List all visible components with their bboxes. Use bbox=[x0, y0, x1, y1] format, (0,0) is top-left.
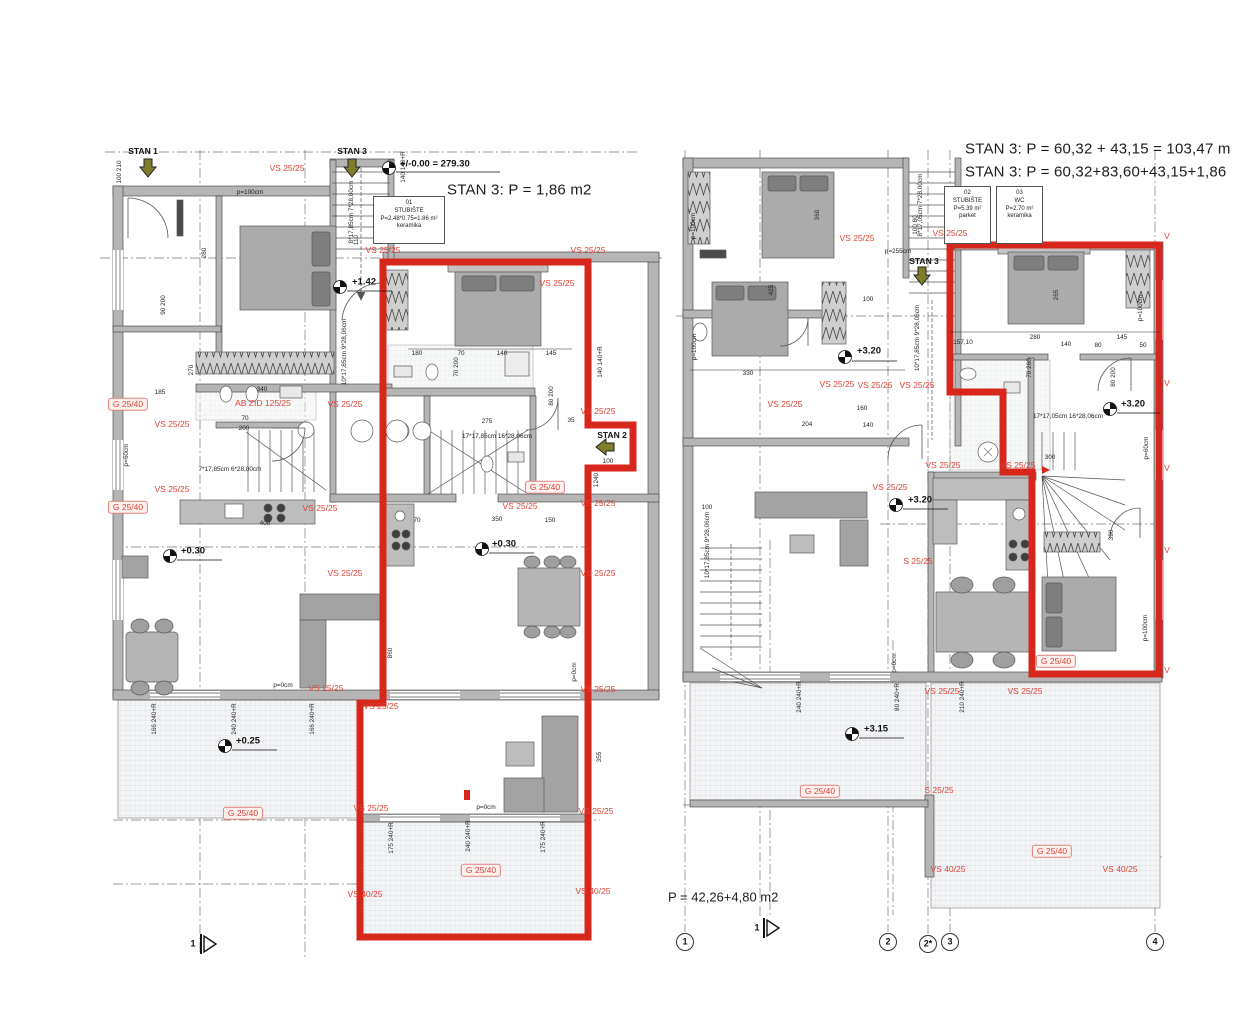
room-name: WC bbox=[998, 198, 1041, 206]
axis-bubbles bbox=[677, 934, 1164, 953]
label-g-25-40: G 25/40 bbox=[1032, 845, 1072, 858]
label-vs-25-25: VS 25/25 bbox=[581, 407, 616, 416]
label-860: 860 bbox=[388, 648, 394, 659]
label-17-17-85cm-16-28-06cm: 17*17,85cm 16*28,06cm bbox=[462, 434, 532, 440]
label-vs-25-25: VS 25/25 bbox=[364, 702, 399, 711]
axis-bubble-2s: 2* bbox=[924, 940, 933, 949]
label-ab-zid-125-25: AB ZID 125/25 bbox=[235, 399, 291, 408]
label-204: 204 bbox=[802, 422, 813, 428]
label-vs-25-25: VS 25/25 bbox=[303, 504, 338, 513]
label-p-0cm: p=0cm bbox=[572, 662, 578, 681]
label-g-25-40: G 25/40 bbox=[108, 501, 148, 514]
label-3-20: +3.20 bbox=[908, 495, 932, 505]
label-p-60cm: p=60cm bbox=[1144, 437, 1150, 460]
label-10-17-85cm-9-28-06cm: 10*17,85cm 9*28,06cm bbox=[915, 305, 921, 371]
label-70: 70 bbox=[241, 416, 248, 422]
room-box-wc-03: 03 WC P=2.70 m² keramika bbox=[996, 186, 1043, 244]
label-p-255cm: p=255cm bbox=[885, 249, 911, 255]
label-g-25-40: G 25/40 bbox=[108, 398, 148, 411]
label-v: V bbox=[1164, 666, 1170, 675]
label-80: 80 bbox=[1094, 343, 1101, 349]
label-340: 340 bbox=[257, 387, 268, 393]
label-vs-25-25: VS 25/25 bbox=[1008, 687, 1043, 696]
label-v: V bbox=[1164, 232, 1170, 241]
label-vs-25-25: VS 25/25 bbox=[309, 684, 344, 693]
room-number: 02 bbox=[946, 190, 989, 198]
entrance-stan1: STAN 1 bbox=[128, 147, 158, 156]
label-3-15: +3.15 bbox=[864, 724, 888, 734]
label-1-42: +1.42 bbox=[352, 277, 376, 287]
axis-bubble-4: 4 bbox=[1152, 938, 1157, 947]
label-p-100cm: p=100cm bbox=[237, 190, 263, 196]
label-vs-25-25: VS 25/25 bbox=[540, 279, 575, 288]
section-marker-1-left: 1 bbox=[190, 940, 195, 949]
axis-bubble-3: 3 bbox=[947, 938, 952, 947]
room-number: 01 bbox=[375, 200, 443, 208]
arrow-stan2-left bbox=[596, 439, 614, 455]
label-280: 280 bbox=[202, 248, 208, 259]
label-vs-25-25: VS 25/25 bbox=[858, 381, 893, 390]
room-floor: keramika bbox=[375, 223, 443, 231]
label-100-210: 100 210 bbox=[117, 160, 123, 183]
label-vs-25-25: VS 25/25 bbox=[768, 400, 803, 409]
label-70-200: 70 200 bbox=[454, 357, 460, 377]
label-0-25: +0.25 bbox=[236, 736, 260, 746]
label-90-200: 90 200 bbox=[161, 295, 167, 315]
label-vs-25-25: VS 25/25 bbox=[820, 380, 855, 389]
label-80-200: 80 200 bbox=[549, 386, 555, 406]
axis-bubble-2: 2 bbox=[885, 938, 890, 947]
label-175-240-r: 175 240+R bbox=[541, 821, 547, 852]
label-240-240-r: 240 240+R bbox=[232, 703, 238, 734]
label-300: 300 bbox=[1045, 455, 1056, 461]
label-10-17-85cm-9-28-06cm: 10*17,85cm 9*28,06cm bbox=[705, 512, 711, 578]
room-area: P=2.48*0.75=1.86 m² bbox=[375, 216, 443, 224]
label-v: V bbox=[1164, 379, 1170, 388]
label-100: 100 bbox=[863, 297, 874, 303]
label-240-240-r: 240 240+R bbox=[797, 681, 803, 712]
label-vs-40-25: VS 40/25 bbox=[576, 887, 611, 896]
label-p-0cm: p=0cm bbox=[273, 683, 292, 689]
label-10-17-85cm-9-28-06cm: 10*17,85cm 9*28,06cm bbox=[342, 319, 348, 385]
label-210-240-r: 210 240+R bbox=[960, 681, 966, 712]
axis-bubble-1: 1 bbox=[682, 938, 687, 947]
label-v: V bbox=[1164, 546, 1170, 555]
room-floor: keramika bbox=[998, 213, 1041, 221]
room-box-stubiste-01: 01 STUBIŠTE P=2.48*0.75=1.86 m² keramika bbox=[373, 196, 445, 244]
label-vs-25-25: VS 25/25 bbox=[840, 234, 875, 243]
label-140-140-r: 140 140+R bbox=[598, 346, 604, 377]
label-vs-25-25: VS 25/25 bbox=[581, 685, 616, 694]
terrace-area-text: P = 42,26+4,80 m2 bbox=[668, 891, 778, 904]
red-mark bbox=[464, 790, 470, 800]
label-150: 150 bbox=[545, 518, 556, 524]
label-vs-25-25: VS 25/25 bbox=[926, 461, 961, 470]
label-vs-25-25: VS 25/25 bbox=[270, 164, 305, 173]
label-vs-25-25: VS 25/25 bbox=[366, 246, 401, 255]
label-s-25-25: S 25/25 bbox=[924, 786, 953, 795]
label-vs-25-25: VS 25/25 bbox=[1001, 461, 1036, 470]
label-17-17-05cm-16-28-06cm: 17*17,05cm 16*28,06cm bbox=[1033, 414, 1103, 420]
label-vs-25-25: VS 25/25 bbox=[503, 502, 538, 511]
label-330: 330 bbox=[743, 371, 754, 377]
label-p-100cm: p=100cm bbox=[1138, 295, 1144, 321]
right-plan-title-2: STAN 3: P = 60,32+83,60+43,15+1,86 bbox=[965, 165, 1226, 180]
label-3-20: +3.20 bbox=[857, 346, 881, 356]
label-0-30: +0.30 bbox=[181, 546, 205, 556]
label-360: 360 bbox=[815, 210, 821, 221]
entrance-stan3-left: STAN 3 bbox=[337, 147, 367, 156]
label-vs-40-25: VS 40/25 bbox=[348, 890, 383, 899]
label-350: 350 bbox=[492, 517, 503, 523]
label-p-0cm: p=0cm bbox=[892, 653, 898, 672]
label-g-25-40: G 25/40 bbox=[525, 481, 565, 494]
label-270: 270 bbox=[189, 365, 195, 376]
label-400: 400 bbox=[260, 521, 271, 527]
room-name: STUBIŠTE bbox=[946, 198, 989, 206]
label-280: 280 bbox=[1030, 335, 1041, 341]
label-8-17-05cm-7-28-00cm: 8*17,05cm 7*28,00cm bbox=[918, 174, 924, 237]
label-vs-25-25: VS 25/25 bbox=[925, 687, 960, 696]
label-0-00-279-30: +/-0.00 = 279.30 bbox=[400, 159, 470, 169]
label-7-17-85cm-6-28-00cm: 7*17,85cm 6*28,00cm bbox=[199, 467, 262, 473]
entrance-stan2: STAN 2 bbox=[597, 431, 627, 440]
label-50: 50 bbox=[1139, 343, 1146, 349]
label-80-240-r: 80 240+R bbox=[895, 683, 901, 711]
label-g-25-40: G 25/40 bbox=[800, 785, 840, 798]
label-145: 145 bbox=[546, 351, 557, 357]
label-vs-25-25: VS 25/25 bbox=[155, 485, 190, 494]
label-p-60cm: p=60cm bbox=[124, 444, 130, 467]
room-number: 03 bbox=[998, 190, 1041, 198]
label-140: 140 bbox=[1061, 342, 1072, 348]
label-p-0cm: p=0cm bbox=[476, 805, 495, 811]
label-vs-25-25: VS 25/25 bbox=[571, 246, 606, 255]
label-185: 185 bbox=[155, 390, 166, 396]
label-vs-25-25: VS 25/25 bbox=[328, 400, 363, 409]
room-area: P=5.39 m² bbox=[946, 206, 989, 214]
label-p-100cm: p=100cm bbox=[1143, 615, 1149, 641]
label-70: 70 bbox=[413, 518, 420, 524]
label-240-240-r: 240 240+R bbox=[466, 820, 472, 851]
label-200: 200 bbox=[239, 426, 250, 432]
label-vs-40-25: VS 40/25 bbox=[1103, 865, 1138, 874]
label-8-17-85cm-7-28-00cm: 8*17,85cm 7*28,00cm bbox=[349, 181, 355, 244]
label-vs-25-25: VS 25/25 bbox=[581, 499, 616, 508]
label-v: V bbox=[1164, 464, 1170, 473]
label-157-10: 157,10 bbox=[953, 340, 973, 346]
label-355: 355 bbox=[597, 752, 603, 763]
label-s-25-25: S 25/25 bbox=[903, 557, 932, 566]
label-vs-25-25: VS 25/25 bbox=[354, 804, 389, 813]
label-160: 160 bbox=[857, 406, 868, 412]
label-vs-25-25: VS 25/25 bbox=[873, 483, 908, 492]
label-35: 35 bbox=[567, 418, 574, 424]
room-area: P=2.70 m² bbox=[998, 206, 1041, 214]
label-180: 180 bbox=[412, 351, 423, 357]
label-166-240-r: 166 240+R bbox=[152, 703, 158, 734]
label-vs-25-25: VS 25/25 bbox=[579, 807, 614, 816]
label-265: 265 bbox=[1054, 290, 1060, 301]
label-425: 425 bbox=[769, 285, 775, 296]
label-vs-25-25: VS 25/25 bbox=[581, 569, 616, 578]
label-100: 100 bbox=[702, 505, 713, 511]
label-140-140-r: 140 140+R bbox=[401, 151, 407, 182]
label-vs-25-25: VS 25/25 bbox=[328, 569, 363, 578]
label-g-25-40: G 25/40 bbox=[223, 807, 263, 820]
left-plan-title: STAN 3: P = 1,86 m2 bbox=[447, 183, 592, 198]
entrance-stan3-right: STAN 3 bbox=[909, 257, 939, 266]
label-g-25-40: G 25/40 bbox=[461, 864, 501, 877]
label-100: 100 bbox=[603, 459, 614, 465]
label-70-260: 70 260 bbox=[1027, 358, 1033, 378]
label-3-20: +3.20 bbox=[1121, 399, 1145, 409]
label-1240: 1240 bbox=[594, 473, 600, 487]
label-275: 275 bbox=[482, 419, 493, 425]
label-p-100cm: p=100cm bbox=[691, 213, 697, 239]
right-plan-title-1: STAN 3: P = 60,32 + 43,15 = 103,47 m bbox=[965, 142, 1231, 157]
label-p-100cm: p=100cm bbox=[692, 334, 698, 360]
label-175-240-r: 175 240+R bbox=[389, 822, 395, 853]
arrow-stan1-down bbox=[140, 159, 156, 177]
label-vs-25-25: VS 25/25 bbox=[900, 381, 935, 390]
label-145: 145 bbox=[1117, 335, 1128, 341]
room-floor: parket bbox=[946, 213, 989, 221]
label-80-200: 80 200 bbox=[1111, 367, 1117, 387]
label-0-30: +0.30 bbox=[492, 539, 516, 549]
section-marker-1-right: 1 bbox=[754, 924, 759, 933]
label-vs-40-25: VS 40/25 bbox=[931, 865, 966, 874]
label-g-25-40: G 25/40 bbox=[1036, 655, 1076, 668]
room-name: STUBIŠTE bbox=[375, 208, 443, 216]
label-140: 140 bbox=[863, 423, 874, 429]
label-166-240-r: 166 240+R bbox=[310, 703, 316, 734]
label-vs-25-25: VS 25/25 bbox=[155, 420, 190, 429]
floor-plan-drawing: 01 STUBIŠTE P=2.48*0.75=1.86 m² keramika… bbox=[0, 0, 1247, 1034]
label-vs-25-25: VS 25/25 bbox=[933, 229, 968, 238]
label-390: 390 bbox=[1109, 530, 1115, 541]
label-140: 140 bbox=[497, 351, 508, 357]
